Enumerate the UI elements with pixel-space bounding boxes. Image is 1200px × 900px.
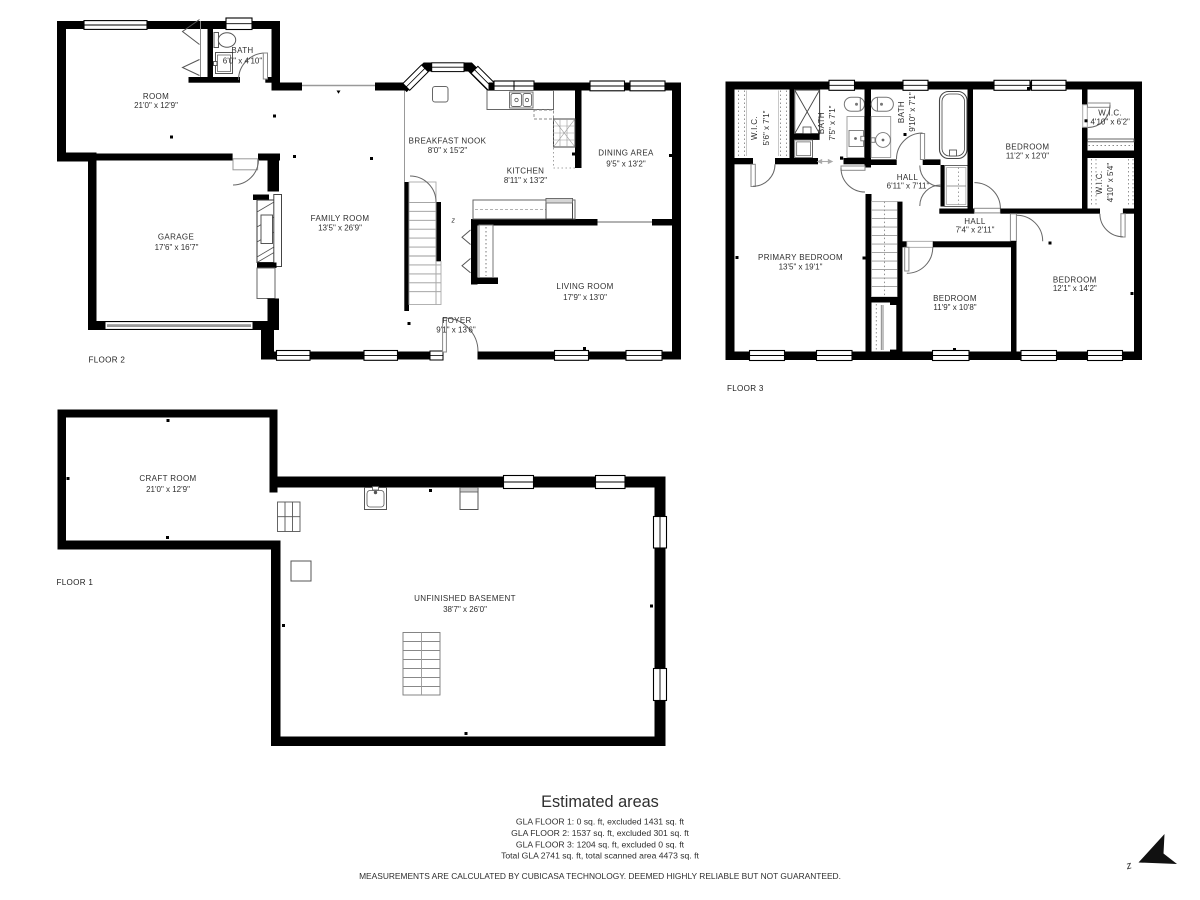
svg-text:6'0" x 4'10": 6'0" x 4'10" <box>223 56 263 65</box>
svg-text:FLOOR 3: FLOOR 3 <box>727 384 764 393</box>
svg-text:4'10" x 5'4": 4'10" x 5'4" <box>1106 163 1115 203</box>
svg-text:17'9" x 13'0": 17'9" x 13'0" <box>563 293 607 302</box>
svg-text:PRIMARY BEDROOM: PRIMARY BEDROOM <box>758 253 843 262</box>
svg-text:Estimated areas: Estimated areas <box>541 793 659 811</box>
svg-text:7'5" x 7'1": 7'5" x 7'1" <box>828 105 837 140</box>
svg-text:GLA FLOOR 3: 1204 sq. ft, excl: GLA FLOOR 3: 1204 sq. ft, excluded 0 sq.… <box>516 840 685 850</box>
svg-text:21'0" x 12'9": 21'0" x 12'9" <box>134 101 178 110</box>
svg-text:BEDROOM: BEDROOM <box>933 294 977 303</box>
svg-text:CRAFT ROOM: CRAFT ROOM <box>139 474 196 483</box>
svg-text:BREAKFAST NOOK: BREAKFAST NOOK <box>409 136 487 145</box>
svg-text:W.I.C.: W.I.C. <box>1095 171 1104 195</box>
svg-text:BATH: BATH <box>897 101 906 123</box>
svg-text:8'11" x 13'2": 8'11" x 13'2" <box>504 176 547 185</box>
svg-text:7'4" x 2'11": 7'4" x 2'11" <box>956 225 995 234</box>
svg-text:8'0" x 15'2": 8'0" x 15'2" <box>428 146 468 155</box>
svg-text:z: z <box>451 217 456 224</box>
svg-text:38'7" x 26'0": 38'7" x 26'0" <box>443 605 487 614</box>
svg-text:9'10" x 7'1": 9'10" x 7'1" <box>908 92 917 132</box>
svg-text:FAMILY ROOM: FAMILY ROOM <box>311 214 370 223</box>
svg-text:BATH: BATH <box>231 46 253 55</box>
svg-text:4'10" x 6'2": 4'10" x 6'2" <box>1090 117 1130 126</box>
svg-text:BEDROOM: BEDROOM <box>1006 142 1050 151</box>
svg-text:UNFINISHED BASEMENT: UNFINISHED BASEMENT <box>414 594 516 603</box>
svg-text:21'0" x 12'9": 21'0" x 12'9" <box>146 485 190 494</box>
svg-text:12'1" x 14'2": 12'1" x 14'2" <box>1053 284 1097 293</box>
svg-text:LIVING ROOM: LIVING ROOM <box>556 282 613 291</box>
svg-text:9'5" x 13'2": 9'5" x 13'2" <box>606 160 646 169</box>
svg-text:DINING AREA: DINING AREA <box>598 149 654 158</box>
svg-text:17'6" x 16'7": 17'6" x 16'7" <box>155 243 199 252</box>
svg-text:Total GLA 2741 sq. ft, total s: Total GLA 2741 sq. ft, total scanned are… <box>501 851 699 861</box>
svg-text:MEASUREMENTS ARE CALCULATED BY: MEASUREMENTS ARE CALCULATED BY CUBICASA … <box>359 871 841 881</box>
svg-text:5'6" x 7'1": 5'6" x 7'1" <box>762 110 771 145</box>
svg-text:W.I.C.: W.I.C. <box>750 116 759 140</box>
svg-text:6'11" x 7'11": 6'11" x 7'11" <box>887 181 930 190</box>
svg-text:13'5" x 26'9": 13'5" x 26'9" <box>318 224 362 233</box>
svg-text:GARAGE: GARAGE <box>158 233 194 242</box>
svg-text:FLOOR 1: FLOOR 1 <box>57 578 94 587</box>
svg-text:13'5" x 19'1": 13'5" x 19'1" <box>779 263 823 272</box>
svg-text:FOYER: FOYER <box>442 316 471 325</box>
svg-text:FLOOR 2: FLOOR 2 <box>89 355 126 364</box>
svg-text:GLA FLOOR 1: 0 sq. ft, exclude: GLA FLOOR 1: 0 sq. ft, excluded 1431 sq.… <box>516 817 685 827</box>
svg-text:11'9" x 10'8": 11'9" x 10'8" <box>933 303 976 312</box>
svg-text:W.I.C.: W.I.C. <box>1098 109 1122 118</box>
svg-text:KITCHEN: KITCHEN <box>507 167 545 176</box>
svg-text:BEDROOM: BEDROOM <box>1053 275 1097 284</box>
svg-text:11'2" x 12'0": 11'2" x 12'0" <box>1006 151 1049 160</box>
svg-text:BATH: BATH <box>817 112 826 134</box>
svg-text:GLA FLOOR 2: 1537 sq. ft, excl: GLA FLOOR 2: 1537 sq. ft, excluded 301 s… <box>511 828 689 838</box>
svg-text:9'1" x 13'6": 9'1" x 13'6" <box>436 325 476 334</box>
svg-text:ROOM: ROOM <box>143 92 169 101</box>
